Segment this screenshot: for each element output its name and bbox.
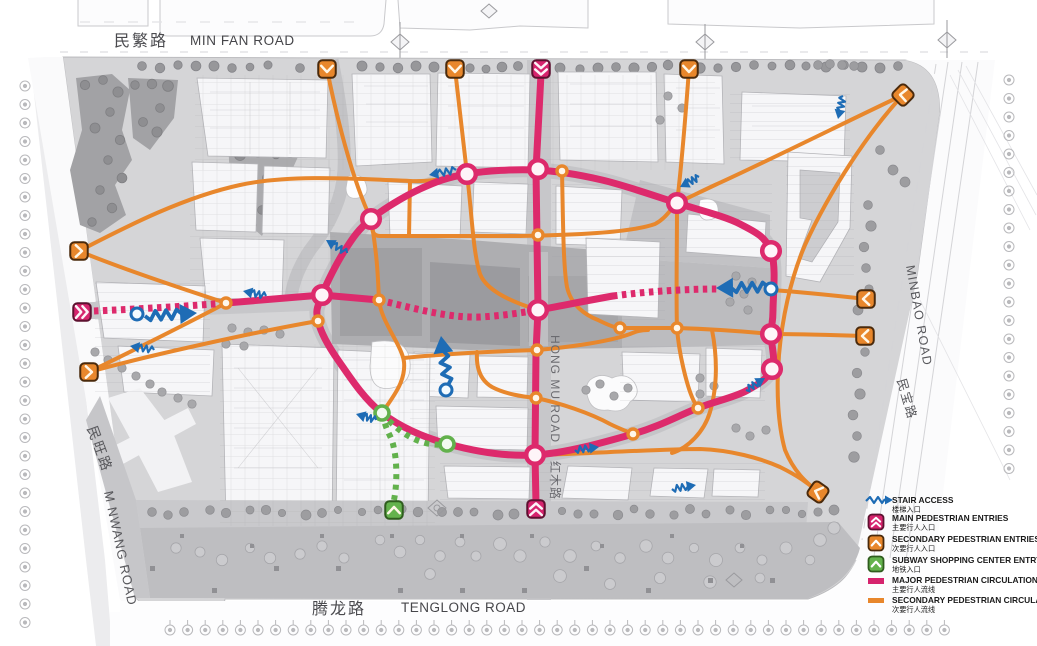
svg-text:次要行人流线: 次要行人流线 [892,605,935,614]
svg-text:次要行人入口: 次要行人入口 [892,544,935,553]
svg-text:主要行人流线: 主要行人流线 [892,585,935,594]
svg-text:HONG MU ROAD: HONG MU ROAD [548,335,562,443]
svg-text:MIN FAN ROAD: MIN FAN ROAD [190,33,295,48]
svg-text:红木路: 红木路 [548,461,563,500]
svg-text:地铁入口: 地铁入口 [892,565,921,574]
svg-text:TENGLONG ROAD: TENGLONG ROAD [401,600,526,615]
svg-text:MAIN PEDESTRIAN ENTRIES: MAIN PEDESTRIAN ENTRIES [892,513,1009,523]
svg-text:主要行人入口: 主要行人入口 [892,523,935,532]
svg-text:SUBWAY SHOPPING CENTER ENTRY: SUBWAY SHOPPING CENTER ENTRY [892,555,1037,565]
svg-text:民繁路: 民繁路 [114,32,168,50]
svg-text:MAJOR PEDESTRIAN CIRCULATION: MAJOR PEDESTRIAN CIRCULATION [892,575,1037,585]
svg-text:SECONDARY PEDESTRIAN ENTRIES: SECONDARY PEDESTRIAN ENTRIES [892,534,1037,544]
svg-text:SECONDARY PEDESTRIAN CIRCULATI: SECONDARY PEDESTRIAN CIRCULATION [892,595,1037,605]
svg-text:STAIR ACCESS: STAIR ACCESS [892,495,954,505]
svg-text:腾龙路: 腾龙路 [312,600,366,618]
